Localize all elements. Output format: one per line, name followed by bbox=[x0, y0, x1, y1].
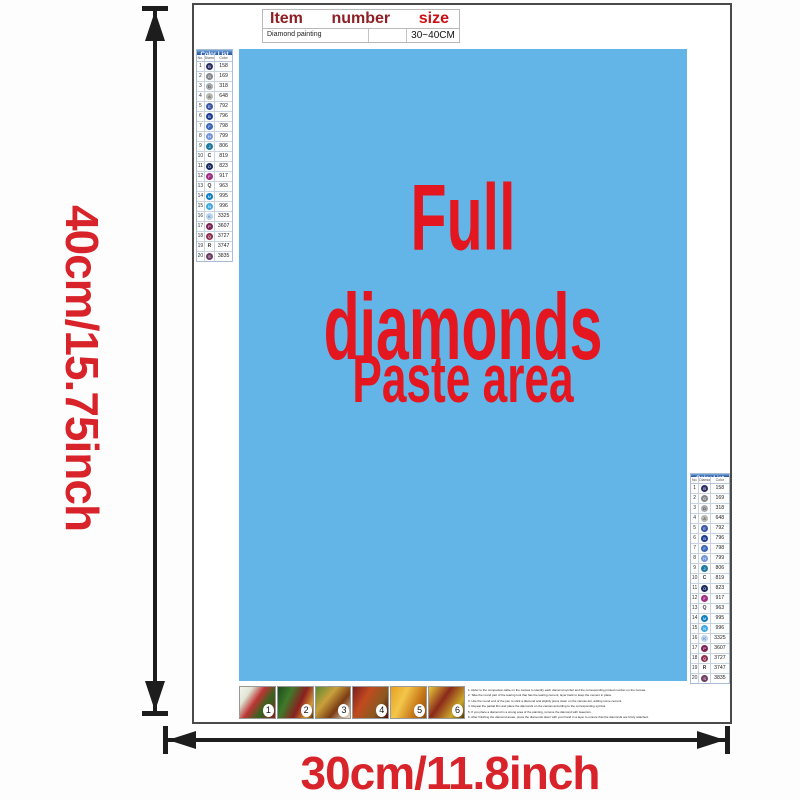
dmc-color-code: 963 bbox=[711, 604, 729, 613]
diamond-color-swatch: E bbox=[206, 103, 213, 110]
color-list-row: 10C819 bbox=[197, 152, 232, 162]
dmc-color-code: 917 bbox=[215, 172, 232, 181]
dmc-color-code: 3727 bbox=[711, 654, 729, 663]
color-row-number: 6 bbox=[691, 534, 699, 543]
table-header-number: number bbox=[331, 10, 390, 28]
dmc-color-code: 3325 bbox=[215, 212, 232, 221]
dmc-color-code: 648 bbox=[215, 92, 232, 101]
dmc-color-code: 318 bbox=[711, 504, 729, 513]
dmc-color-code: 3747 bbox=[215, 242, 232, 251]
color-list-row: 20S3835 bbox=[197, 252, 232, 261]
color-list-row: 12F917 bbox=[197, 172, 232, 182]
color-list-row: 7F798 bbox=[197, 122, 232, 132]
color-row-number: 15 bbox=[691, 624, 699, 633]
diamond-color-swatch: F bbox=[206, 173, 213, 180]
color-list-row: 8H799 bbox=[197, 132, 232, 142]
diamond-color-swatch: R bbox=[206, 243, 213, 250]
color-row-number: 7 bbox=[691, 544, 699, 553]
dmc-color-code: 823 bbox=[215, 162, 232, 171]
dmc-color-code: 792 bbox=[711, 524, 729, 533]
dmc-color-code: 806 bbox=[711, 564, 729, 573]
color-list-row: 2G169 bbox=[691, 494, 729, 504]
paste-area-subtitle: Paste area bbox=[273, 340, 654, 421]
color-list-row: 19R3747 bbox=[197, 242, 232, 252]
diamond-color-swatch: P bbox=[206, 223, 213, 230]
diamond-color-swatch: C bbox=[206, 153, 213, 160]
color-list-row: 15N996 bbox=[197, 202, 232, 212]
diamond-color-swatch: F bbox=[206, 123, 213, 130]
diamond-color-swatch: O bbox=[206, 163, 213, 170]
color-list-row: 15N996 bbox=[691, 624, 729, 634]
step-thumbnail: 6 bbox=[428, 686, 465, 719]
color-list-row: 3D318 bbox=[691, 504, 729, 514]
color-row-number: 13 bbox=[691, 604, 699, 613]
color-list-row: 7F798 bbox=[691, 544, 729, 554]
dmc-color-code: 995 bbox=[215, 192, 232, 201]
color-row-number: 4 bbox=[691, 514, 699, 523]
dmc-color-code: 792 bbox=[215, 102, 232, 111]
color-row-number: 20 bbox=[691, 674, 699, 683]
color-list-row: 8H799 bbox=[691, 554, 729, 564]
color-row-number: 17 bbox=[691, 644, 699, 653]
color-row-number: 8 bbox=[197, 132, 205, 141]
diamond-color-swatch: R bbox=[701, 665, 708, 672]
paste-area: Full diamonds Paste area bbox=[239, 49, 687, 681]
dmc-color-code: 3747 bbox=[711, 664, 729, 673]
color-list-row: 18Q3727 bbox=[197, 232, 232, 242]
diamond-color-swatch: M bbox=[206, 193, 213, 200]
color-row-number: 16 bbox=[197, 212, 205, 221]
table-header-size: size bbox=[419, 10, 449, 28]
diamond-color-swatch: H bbox=[701, 555, 708, 562]
dmc-color-code: 158 bbox=[711, 484, 729, 493]
color-row-number: 15 bbox=[197, 202, 205, 211]
diamond-color-swatch: B bbox=[701, 485, 708, 492]
diamond-color-swatch: P bbox=[701, 645, 708, 652]
height-dimension-label: 40cm/15.75inch bbox=[61, 168, 109, 568]
color-row-number: 19 bbox=[197, 242, 205, 251]
diamond-color-swatch: S bbox=[206, 253, 213, 260]
diamond-color-swatch: G bbox=[206, 73, 213, 80]
step-number-badge: 2 bbox=[301, 704, 312, 717]
dmc-color-code: 3835 bbox=[711, 674, 729, 683]
arrow-shaft-vertical bbox=[153, 10, 157, 712]
width-dimension-label: 30cm/11.8inch bbox=[240, 746, 660, 800]
color-list-row: 14M995 bbox=[691, 614, 729, 624]
diamond-color-swatch: J bbox=[206, 143, 213, 150]
color-row-number: 13 bbox=[197, 182, 205, 191]
table-cell-size: 30~40CM bbox=[406, 29, 459, 42]
color-row-number: 3 bbox=[197, 82, 205, 91]
dmc-color-code: 158 bbox=[215, 62, 232, 71]
step-thumbnail: 3 bbox=[315, 686, 352, 719]
color-row-number: 5 bbox=[691, 524, 699, 533]
color-row-number: 18 bbox=[197, 232, 205, 241]
color-row-number: 8 bbox=[691, 554, 699, 563]
color-list-row: 6B796 bbox=[197, 112, 232, 122]
color-row-number: 2 bbox=[691, 494, 699, 503]
color-row-number: 9 bbox=[691, 564, 699, 573]
color-list-row: 9J806 bbox=[691, 564, 729, 574]
color-list-row: 1B158 bbox=[691, 484, 729, 494]
diamond-color-swatch: Q bbox=[206, 183, 213, 190]
color-row-number: 4 bbox=[197, 92, 205, 101]
color-row-number: 17 bbox=[197, 222, 205, 231]
dmc-color-code: 3607 bbox=[215, 222, 232, 231]
color-list-row: 2G169 bbox=[197, 72, 232, 82]
color-row-number: 5 bbox=[197, 102, 205, 111]
dmc-color-code: 796 bbox=[215, 112, 232, 121]
diamond-color-swatch: Q bbox=[701, 605, 708, 612]
dmc-color-code: 996 bbox=[215, 202, 232, 211]
diamond-color-swatch: K bbox=[206, 213, 213, 220]
dmc-color-code: 995 bbox=[711, 614, 729, 623]
step-number-badge: 3 bbox=[338, 704, 349, 717]
color-list-left: Color List No.DiamondColor 1B1582G1693D3… bbox=[196, 49, 233, 262]
dmc-color-code: 798 bbox=[711, 544, 729, 553]
arrowhead-right-icon bbox=[697, 731, 725, 749]
color-row-number: 12 bbox=[197, 172, 205, 181]
color-list-column-headers: No.DiamondColor bbox=[691, 477, 729, 484]
step-thumbnail: 5 bbox=[390, 686, 427, 719]
diamond-color-swatch: G bbox=[701, 495, 708, 502]
dmc-color-code: 3835 bbox=[215, 252, 232, 261]
item-size-table: Item number size Diamond painting 30~40C… bbox=[262, 9, 460, 43]
step-number-badge: 4 bbox=[376, 704, 387, 717]
color-row-number: 1 bbox=[197, 62, 205, 71]
diamond-color-swatch: B bbox=[206, 113, 213, 120]
color-list-row: 16K3325 bbox=[691, 634, 729, 644]
instruction-line: 6. After finishing the diamond areas, pr… bbox=[468, 715, 688, 720]
color-list-column-header: No. bbox=[197, 55, 205, 61]
color-list-row: 12F917 bbox=[691, 594, 729, 604]
diamond-color-swatch: Q bbox=[701, 655, 708, 662]
diamond-color-swatch: K bbox=[701, 635, 708, 642]
diamond-color-swatch: D bbox=[701, 505, 708, 512]
color-list-row: 5E792 bbox=[691, 524, 729, 534]
step-thumbnails: 123456 bbox=[239, 686, 465, 719]
color-list-row: 9J806 bbox=[197, 142, 232, 152]
color-row-number: 3 bbox=[691, 504, 699, 513]
diamond-color-swatch: C bbox=[701, 575, 708, 582]
dmc-color-code: 169 bbox=[215, 72, 232, 81]
color-row-number: 7 bbox=[197, 122, 205, 131]
diamond-color-swatch: A bbox=[206, 93, 213, 100]
diamond-color-swatch: B bbox=[206, 63, 213, 70]
color-list-column-header: Diamond bbox=[205, 55, 216, 61]
step-number-badge: 1 bbox=[263, 704, 274, 717]
diamond-color-swatch: J bbox=[701, 565, 708, 572]
diamond-color-swatch: O bbox=[701, 585, 708, 592]
arrowhead-down-icon bbox=[145, 681, 165, 711]
dmc-color-code: 819 bbox=[711, 574, 729, 583]
color-row-number: 20 bbox=[197, 252, 205, 261]
color-row-number: 10 bbox=[197, 152, 205, 161]
dmc-color-code: 318 bbox=[215, 82, 232, 91]
color-list-column-header: Diamond bbox=[699, 477, 710, 483]
table-cell-item: Diamond painting bbox=[263, 29, 368, 42]
step-thumbnail: 4 bbox=[352, 686, 389, 719]
arrow-shaft-horizontal bbox=[167, 738, 726, 742]
color-row-number: 10 bbox=[691, 574, 699, 583]
color-list-row: 13Q963 bbox=[197, 182, 232, 192]
color-row-number: 6 bbox=[197, 112, 205, 121]
diamond-color-swatch: S bbox=[701, 675, 708, 682]
color-row-number: 1 bbox=[691, 484, 699, 493]
color-list-right: Color List No.DiamondColor 1B1582G1693D3… bbox=[690, 473, 730, 684]
color-list-row: 19R3747 bbox=[691, 664, 729, 674]
dmc-color-code: 796 bbox=[711, 534, 729, 543]
color-row-number: 18 bbox=[691, 654, 699, 663]
color-list-column-header: Color bbox=[711, 477, 729, 483]
table-header-row: Item number size bbox=[263, 10, 459, 29]
table-cell-number bbox=[368, 29, 406, 42]
step-number-badge: 6 bbox=[452, 704, 463, 717]
dmc-color-code: 799 bbox=[711, 554, 729, 563]
table-header-item: Item bbox=[270, 10, 303, 28]
color-list-column-header: No. bbox=[691, 477, 699, 483]
diamond-color-swatch: N bbox=[206, 203, 213, 210]
dmc-color-code: 806 bbox=[215, 142, 232, 151]
dmc-color-code: 917 bbox=[711, 594, 729, 603]
table-data-row: Diamond painting 30~40CM bbox=[263, 29, 459, 42]
diamond-color-swatch: F bbox=[701, 595, 708, 602]
color-list-column-headers: No.DiamondColor bbox=[197, 55, 232, 62]
color-row-number: 14 bbox=[197, 192, 205, 201]
canvas-sheet: Item number size Diamond painting 30~40C… bbox=[192, 3, 732, 724]
step-number-badge: 5 bbox=[414, 704, 425, 717]
color-list-row: 14M995 bbox=[197, 192, 232, 202]
color-list-row: 13Q963 bbox=[691, 604, 729, 614]
color-list-row: 17P3607 bbox=[197, 222, 232, 232]
color-row-number: 14 bbox=[691, 614, 699, 623]
arrow-end-cap-right bbox=[725, 726, 730, 754]
color-list-column-header: Color bbox=[215, 55, 232, 61]
diamond-color-swatch: Q bbox=[206, 233, 213, 240]
height-dimension-arrow bbox=[142, 6, 168, 716]
step-thumbnail: 1 bbox=[239, 686, 276, 719]
dmc-color-code: 799 bbox=[215, 132, 232, 141]
color-list-rows: 1B1582G1693D3184A6485E7926B7967F7988H799… bbox=[197, 62, 232, 261]
diamond-color-swatch: H bbox=[206, 133, 213, 140]
color-list-row: 10C819 bbox=[691, 574, 729, 584]
color-list-row: 16K3325 bbox=[197, 212, 232, 222]
color-row-number: 19 bbox=[691, 664, 699, 673]
diamond-color-swatch: E bbox=[701, 525, 708, 532]
color-row-number: 11 bbox=[691, 584, 699, 593]
color-list-row: 17P3607 bbox=[691, 644, 729, 654]
color-row-number: 11 bbox=[197, 162, 205, 171]
diamond-color-swatch: N bbox=[701, 625, 708, 632]
instructions-text: 1. Refer to the comparison table on the … bbox=[468, 685, 688, 723]
color-list-row: 3D318 bbox=[197, 82, 232, 92]
color-row-number: 16 bbox=[691, 634, 699, 643]
dmc-color-code: 169 bbox=[711, 494, 729, 503]
color-row-number: 12 bbox=[691, 594, 699, 603]
color-list-row: 6B796 bbox=[691, 534, 729, 544]
color-list-row: 1B158 bbox=[197, 62, 232, 72]
dmc-color-code: 963 bbox=[215, 182, 232, 191]
diamond-color-swatch: M bbox=[701, 615, 708, 622]
color-list-row: 4A648 bbox=[197, 92, 232, 102]
dmc-color-code: 3727 bbox=[215, 232, 232, 241]
color-list-rows: 1B1582G1693D3184A6485E7926B7967F7988H799… bbox=[691, 484, 729, 683]
diamond-color-swatch: B bbox=[701, 535, 708, 542]
diamond-color-swatch: A bbox=[701, 515, 708, 522]
color-list-row: 4A648 bbox=[691, 514, 729, 524]
color-list-row: 5E792 bbox=[197, 102, 232, 112]
color-list-row: 18Q3727 bbox=[691, 654, 729, 664]
diamond-color-swatch: D bbox=[206, 83, 213, 90]
diamond-color-swatch: F bbox=[701, 545, 708, 552]
color-list-row: 11O823 bbox=[691, 584, 729, 594]
color-row-number: 2 bbox=[197, 72, 205, 81]
dmc-color-code: 823 bbox=[711, 584, 729, 593]
dmc-color-code: 648 bbox=[711, 514, 729, 523]
color-list-row: 20S3835 bbox=[691, 674, 729, 683]
step-thumbnail: 2 bbox=[277, 686, 314, 719]
color-list-row: 11O823 bbox=[197, 162, 232, 172]
dmc-color-code: 3325 bbox=[711, 634, 729, 643]
color-row-number: 9 bbox=[197, 142, 205, 151]
dmc-color-code: 996 bbox=[711, 624, 729, 633]
dmc-color-code: 3607 bbox=[711, 644, 729, 653]
dmc-color-code: 798 bbox=[215, 122, 232, 131]
dmc-color-code: 819 bbox=[215, 152, 232, 161]
product-diagram: 40cm/15.75inch Item number size Diamond … bbox=[0, 0, 800, 800]
arrow-end-cap-bottom bbox=[142, 711, 168, 716]
